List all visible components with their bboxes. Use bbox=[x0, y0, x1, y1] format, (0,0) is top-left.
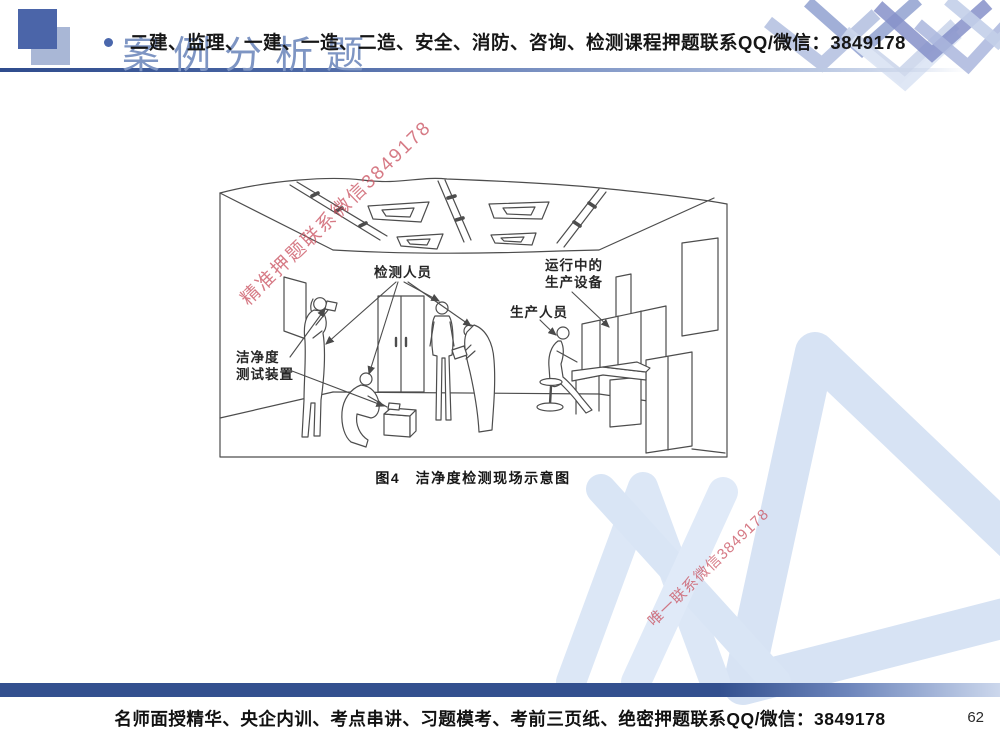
cleanroom-figure: 检测人员 运行中的 生产设备 生产人员 洁净度 测试装置 图4 洁净度检测现场示… bbox=[0, 0, 1000, 750]
page-number: 62 bbox=[967, 709, 984, 726]
ceiling-lights bbox=[368, 202, 549, 249]
person-tester-crouching bbox=[342, 373, 416, 447]
label-running-equipment-2: 生产设备 bbox=[545, 274, 603, 290]
bullet-icon bbox=[104, 38, 113, 47]
person-tester-standing bbox=[302, 298, 337, 437]
label-production-staff: 生产人员 bbox=[510, 304, 568, 320]
label-cleanliness-device-1: 洁净度 bbox=[236, 349, 280, 365]
person-tester-bent bbox=[452, 325, 495, 432]
footer-promo-text: 名师面授精华、央企内训、考点串讲、习题模考、考前三页纸、绝密押题联系QQ/微信：… bbox=[0, 706, 1000, 731]
label-running-equipment-1: 运行中的 bbox=[545, 257, 603, 273]
label-inspectors: 检测人员 bbox=[374, 264, 432, 280]
double-door bbox=[378, 296, 424, 392]
person-worker-standing bbox=[430, 302, 454, 420]
decor-square-dark bbox=[18, 9, 57, 49]
header-promo-text: 二建、监理、一建、一造、二造、安全、消防、咨询、检测课程押题联系QQ/微信：38… bbox=[130, 29, 906, 55]
production-equipment bbox=[572, 306, 692, 453]
figure-caption: 图4 洁净度检测现场示意图 bbox=[375, 470, 570, 486]
label-cleanliness-device-2: 测试装置 bbox=[236, 366, 294, 382]
footer-bar bbox=[0, 683, 1000, 697]
